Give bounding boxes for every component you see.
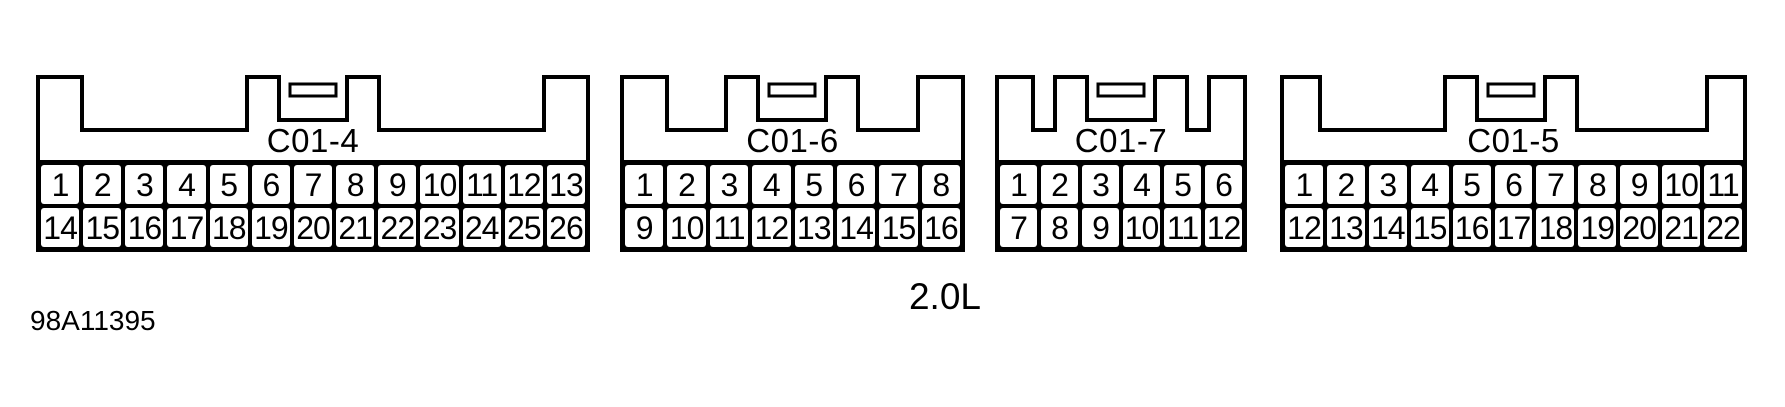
- pin-cell: 9: [625, 208, 663, 247]
- pin-cell: 15: [1411, 208, 1449, 247]
- pin-cell: 5: [795, 165, 833, 204]
- connector-c01-7: C01-7 123456 789101112: [995, 75, 1247, 252]
- pin-cell: 5: [1453, 165, 1491, 204]
- pin-cell: 17: [167, 208, 205, 247]
- pin-cell: 8: [1041, 208, 1078, 247]
- pin-cell: 20: [1620, 208, 1658, 247]
- pin-cell: 4: [167, 165, 205, 204]
- pin-cell: 2: [1327, 165, 1365, 204]
- pin-cell: 3: [710, 165, 748, 204]
- pin-cell: 3: [1082, 165, 1119, 204]
- pin-cell: 6: [1495, 165, 1533, 204]
- pin-cell: 5: [210, 165, 248, 204]
- pin-grid: 1234567891011 1213141516171819202122: [1280, 160, 1747, 252]
- pin-cell: 19: [252, 208, 290, 247]
- pin-cell: 21: [1662, 208, 1700, 247]
- pin-cell: 4: [1123, 165, 1160, 204]
- pin-cell: 23: [420, 208, 458, 247]
- pin-cell: 11: [710, 208, 748, 247]
- pin-cell: 7: [294, 165, 332, 204]
- pin-row-bottom: 14151617181920212223242526: [41, 208, 585, 247]
- pin-row-top: 12345678910111213: [41, 165, 585, 204]
- pin-cell: 24: [463, 208, 501, 247]
- pin-grid: 123456 789101112: [995, 160, 1247, 252]
- connector-label: C01-7: [995, 125, 1247, 157]
- pin-cell: 8: [336, 165, 374, 204]
- pin-cell: 16: [1453, 208, 1491, 247]
- connector-label: C01-6: [620, 125, 965, 157]
- pin-cell: 16: [922, 208, 960, 247]
- pin-cell: 6: [252, 165, 290, 204]
- pin-cell: 2: [667, 165, 705, 204]
- pin-cell: 5: [1164, 165, 1201, 204]
- pin-row-top: 123456: [1000, 165, 1242, 204]
- pin-row-bottom: 910111213141516: [625, 208, 960, 247]
- pin-row-top: 1234567891011: [1285, 165, 1742, 204]
- pin-cell: 22: [1704, 208, 1742, 247]
- connector-key-tab: [290, 84, 336, 96]
- pin-cell: 12: [505, 165, 543, 204]
- connector-key-tab: [769, 84, 815, 96]
- pin-cell: 9: [1082, 208, 1119, 247]
- figure-number: 98A11395: [30, 306, 156, 336]
- connector-label: C01-5: [1280, 125, 1747, 157]
- pin-cell: 20: [294, 208, 332, 247]
- pin-cell: 4: [752, 165, 790, 204]
- pin-cell: 11: [1704, 165, 1742, 204]
- connector-key-tab: [1488, 84, 1534, 96]
- pin-cell: 12: [1205, 208, 1242, 247]
- pin-grid: 12345678 910111213141516: [620, 160, 965, 252]
- pin-cell: 4: [1411, 165, 1449, 204]
- pin-cell: 10: [667, 208, 705, 247]
- pin-cell: 13: [1327, 208, 1365, 247]
- pin-row-bottom: 789101112: [1000, 208, 1242, 247]
- pin-cell: 25: [505, 208, 543, 247]
- pin-cell: 11: [1164, 208, 1201, 247]
- pin-grid: 12345678910111213 1415161718192021222324…: [36, 160, 590, 252]
- pin-cell: 13: [795, 208, 833, 247]
- connector-label: C01-4: [36, 125, 590, 157]
- connector-c01-4: C01-4 12345678910111213 1415161718192021…: [36, 75, 590, 252]
- pin-cell: 14: [41, 208, 79, 247]
- pin-cell: 26: [547, 208, 585, 247]
- pin-cell: 8: [922, 165, 960, 204]
- pin-cell: 8: [1578, 165, 1616, 204]
- pin-cell: 12: [752, 208, 790, 247]
- pin-cell: 7: [879, 165, 917, 204]
- pin-cell: 14: [1369, 208, 1407, 247]
- pin-cell: 11: [463, 165, 501, 204]
- connector-c01-6: C01-6 12345678 910111213141516: [620, 75, 965, 252]
- pin-cell: 2: [83, 165, 121, 204]
- pin-cell: 15: [83, 208, 121, 247]
- pin-cell: 18: [1536, 208, 1574, 247]
- pin-cell: 13: [547, 165, 585, 204]
- pin-cell: 14: [837, 208, 875, 247]
- pin-cell: 6: [1205, 165, 1242, 204]
- connector-c01-5: C01-5 1234567891011 12131415161718192021…: [1280, 75, 1747, 252]
- connector-key-tab: [1098, 84, 1144, 96]
- pin-cell: 1: [1285, 165, 1323, 204]
- pin-cell: 7: [1536, 165, 1574, 204]
- pin-cell: 16: [125, 208, 163, 247]
- pin-cell: 10: [420, 165, 458, 204]
- pin-cell: 1: [1000, 165, 1037, 204]
- pin-cell: 10: [1123, 208, 1160, 247]
- pin-cell: 7: [1000, 208, 1037, 247]
- pin-cell: 15: [879, 208, 917, 247]
- pin-cell: 2: [1041, 165, 1078, 204]
- pin-cell: 17: [1495, 208, 1533, 247]
- pin-cell: 1: [625, 165, 663, 204]
- pin-cell: 19: [1578, 208, 1616, 247]
- pin-cell: 9: [378, 165, 416, 204]
- pin-cell: 21: [336, 208, 374, 247]
- pin-cell: 3: [1369, 165, 1407, 204]
- pin-row-top: 12345678: [625, 165, 960, 204]
- pin-cell: 3: [125, 165, 163, 204]
- pin-cell: 22: [378, 208, 416, 247]
- pin-cell: 10: [1662, 165, 1700, 204]
- pin-row-bottom: 1213141516171819202122: [1285, 208, 1742, 247]
- pin-cell: 18: [210, 208, 248, 247]
- pin-cell: 12: [1285, 208, 1323, 247]
- connector-pinout-diagram: C01-4 12345678910111213 1415161718192021…: [0, 0, 1785, 407]
- engine-size-label: 2.0L: [870, 278, 1020, 316]
- pin-cell: 6: [837, 165, 875, 204]
- pin-cell: 1: [41, 165, 79, 204]
- pin-cell: 9: [1620, 165, 1658, 204]
